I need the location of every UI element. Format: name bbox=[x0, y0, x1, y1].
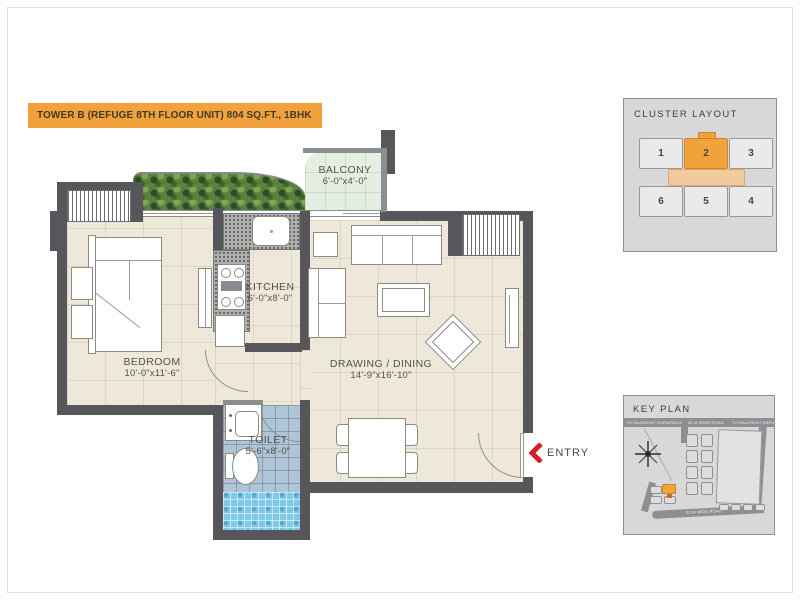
road-label-top-center: 30 M WIDE ROAD bbox=[688, 420, 724, 425]
sofa-three-seater bbox=[351, 225, 442, 265]
drawing-window bbox=[462, 214, 520, 256]
sofa-divider bbox=[318, 303, 346, 304]
shower-floor bbox=[223, 492, 300, 530]
burner bbox=[221, 297, 231, 307]
side-table bbox=[313, 232, 338, 257]
compass-icon bbox=[634, 440, 662, 468]
building-footprint bbox=[743, 504, 753, 511]
nightstand bbox=[71, 267, 93, 300]
key-plan-title: KEY PLAN bbox=[633, 404, 691, 415]
wall-segment bbox=[213, 415, 223, 540]
entry-door-leaf bbox=[520, 433, 524, 478]
entry-label: ENTRY bbox=[547, 447, 589, 459]
planter-strip bbox=[133, 172, 305, 212]
wall-segment bbox=[213, 530, 310, 540]
dining-chair bbox=[336, 424, 349, 446]
bed-seam bbox=[129, 260, 130, 300]
building-footprint bbox=[650, 486, 662, 494]
sofa-divider bbox=[412, 235, 413, 265]
building-cluster-column bbox=[686, 434, 715, 502]
cluster-unit-3: 3 bbox=[729, 138, 773, 169]
cluster-corridor bbox=[668, 169, 745, 186]
sink-drain bbox=[270, 230, 273, 233]
balcony-parapet bbox=[303, 148, 387, 153]
wall-segment bbox=[57, 405, 223, 415]
entry-arrow-icon bbox=[528, 443, 543, 463]
cluster-unit-4: 4 bbox=[729, 186, 773, 217]
sofa-divider bbox=[382, 235, 383, 265]
sofa-two-seater bbox=[308, 268, 346, 338]
burner bbox=[234, 268, 244, 278]
road-label-top-right: TO RAJARHAT SAPURJI bbox=[732, 420, 775, 425]
building-footprint bbox=[755, 504, 765, 511]
wall-stub bbox=[50, 211, 57, 251]
road-label-top-left: TO RAJARHAT CHOWRAHA bbox=[626, 420, 682, 425]
building-footprint bbox=[731, 504, 741, 511]
bedroom-label: BEDROOM 10'-0"x11'-6" bbox=[92, 356, 212, 379]
dining-chair bbox=[405, 452, 418, 474]
cluster-unit-1: 1 bbox=[639, 138, 683, 169]
building-footprint bbox=[701, 434, 713, 447]
kitchen-label: KITCHEN 6'-0"x8'-0" bbox=[238, 281, 302, 304]
drawing-dining-label: DRAWING / DINING 14'-9"x16'-10" bbox=[316, 358, 446, 381]
wall-segment bbox=[245, 343, 302, 352]
tap bbox=[229, 414, 232, 417]
coffee-table bbox=[377, 283, 430, 317]
wall-segment bbox=[300, 400, 310, 540]
wall-stub bbox=[448, 214, 462, 256]
cluster-unit-5: 5 bbox=[684, 186, 728, 217]
blanket-fold bbox=[96, 293, 141, 328]
kitchen-sink bbox=[252, 216, 290, 246]
tap bbox=[229, 429, 232, 432]
key-plan-panel: KEY PLAN TO RAJARHAT CHOWRAHA 30 M WIDE … bbox=[623, 395, 775, 535]
wall-segment bbox=[57, 182, 67, 415]
wall-stub bbox=[131, 182, 143, 222]
building-footprint bbox=[686, 482, 698, 495]
dining-table bbox=[348, 418, 406, 478]
building-row-bottom bbox=[719, 504, 765, 511]
cluster-unit-6: 6 bbox=[639, 186, 683, 217]
balcony-sliding-door bbox=[305, 210, 383, 217]
wall-segment bbox=[305, 482, 533, 493]
tv-unit bbox=[505, 288, 519, 348]
entry-marker: ENTRY bbox=[528, 443, 589, 463]
sofa-back-line bbox=[352, 235, 441, 236]
wardrobe-line bbox=[205, 269, 206, 327]
building-footprint bbox=[650, 496, 662, 504]
building-footprint bbox=[701, 450, 713, 463]
cluster-layout-title: CLUSTER LAYOUT bbox=[634, 109, 738, 120]
wall-segment bbox=[523, 211, 533, 433]
balcony-label: BALCONY 6'-0"x4'-0" bbox=[305, 164, 385, 187]
coffee-table-inner bbox=[382, 288, 425, 312]
large-building bbox=[716, 429, 763, 504]
building-footprint bbox=[719, 504, 729, 511]
building-footprint bbox=[686, 450, 698, 463]
kitchen-cabinet bbox=[215, 315, 245, 347]
dining-chair bbox=[336, 452, 349, 474]
highlighted-building-shadow bbox=[667, 494, 672, 498]
bedroom-window bbox=[67, 190, 131, 222]
hall-opening-floor bbox=[300, 350, 312, 400]
wardrobe bbox=[198, 268, 212, 328]
building-footprint bbox=[701, 482, 713, 495]
burner bbox=[221, 268, 231, 278]
nightstand bbox=[71, 305, 93, 339]
slider-line bbox=[343, 213, 383, 214]
brochure-page: TOWER B (REFUGE 8TH FLOOR UNIT) 804 SQ.F… bbox=[0, 0, 800, 600]
plan-title-bar: TOWER B (REFUGE 8TH FLOOR UNIT) 804 SQ.F… bbox=[28, 103, 322, 128]
cluster-unit-2-highlighted: 2 bbox=[684, 138, 728, 169]
dining-chair bbox=[405, 424, 418, 446]
building-footprint bbox=[686, 466, 698, 479]
tv-line bbox=[509, 295, 510, 343]
building-footprint bbox=[686, 434, 698, 447]
toilet-label: TOILET 5'-6"x8'-0" bbox=[232, 434, 304, 457]
building-footprint bbox=[701, 466, 713, 479]
bed bbox=[95, 237, 162, 352]
cluster-layout-panel: CLUSTER LAYOUT 1 2 3 6 5 4 bbox=[623, 98, 777, 252]
highlighted-building bbox=[662, 484, 676, 494]
